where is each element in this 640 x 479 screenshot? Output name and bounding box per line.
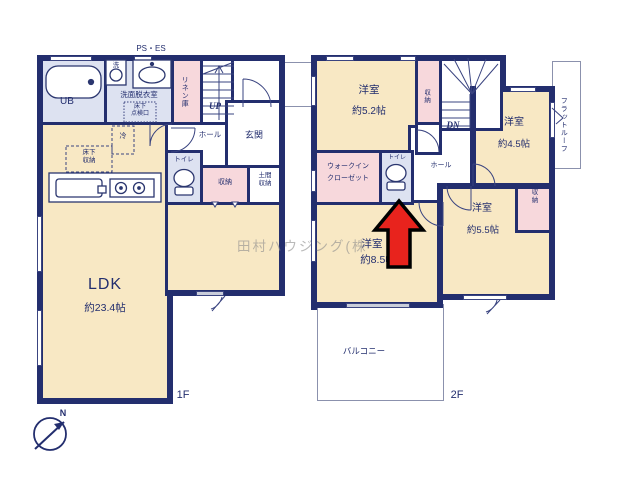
- ps-es-label: PS・ES: [131, 44, 171, 53]
- watermark: 田村ハウジング(株: [237, 235, 368, 255]
- bedroom-8-5-size: 約8.5帖: [348, 254, 408, 266]
- window-marker: [550, 102, 555, 138]
- bedroom-5-2-label: 洋室: [349, 84, 389, 96]
- window-marker: [134, 56, 152, 61]
- bedroom-5-2-size: 約5.2帖: [340, 106, 398, 118]
- wic-label-line2: クローゼット: [320, 175, 376, 183]
- compass-north-label: N: [56, 408, 70, 419]
- window-marker: [326, 56, 354, 61]
- window-marker: [50, 56, 92, 61]
- window-marker: [346, 303, 410, 308]
- floorplan-canvas: N PS・ES UB 洗面脱衣室 床下 点検口 リネン庫 UP ホール 玄関 ト…: [0, 0, 640, 479]
- bedroom-4-5-label: 洋室: [494, 117, 534, 129]
- washer-label: 洗: [106, 62, 126, 70]
- door-area-5-2: [415, 122, 442, 155]
- washroom-label: 洗面脱衣室: [108, 91, 170, 100]
- wic-label-line1: ウォークイン: [320, 163, 376, 171]
- window-marker: [37, 216, 42, 272]
- ub-label: UB: [52, 96, 82, 108]
- doma-storage-label: 土間 収納: [250, 172, 280, 187]
- ldk-size-label: 約23.4帖: [71, 302, 139, 314]
- closet-5-2-label: 収納: [422, 80, 430, 112]
- floor2-label: 2F: [444, 389, 470, 402]
- underfloor-storage-label: 床下 収納: [67, 149, 111, 164]
- fridge-label: 冷: [112, 133, 134, 141]
- closet-5-5-label: 収 納: [522, 189, 548, 204]
- stairs-up-label: UP: [202, 101, 228, 112]
- stairs-down-label: DN: [440, 120, 466, 131]
- bedroom-4-5-size: 約4.5帖: [487, 139, 541, 150]
- room-ub: [37, 55, 107, 125]
- hall-1f-label: ホール: [188, 131, 232, 140]
- wall-segment: [167, 290, 285, 296]
- window-marker: [311, 76, 316, 106]
- storage-1f-label: 収納: [208, 179, 242, 187]
- inspection-hatch-label: 床下 点検口: [124, 104, 156, 118]
- wall-segment: [470, 86, 476, 189]
- floor1-label: 1F: [170, 389, 196, 402]
- entrance-porch: [283, 62, 312, 107]
- window-marker: [400, 56, 416, 61]
- window-marker: [196, 291, 224, 296]
- compass-icon: [26, 406, 78, 462]
- bedroom-5-5-label: 洋室: [462, 203, 502, 215]
- toilet-2f-label: トイレ: [382, 155, 412, 162]
- linen-closet-label: リネン庫: [180, 68, 188, 116]
- balcony-label: バルコニー: [334, 346, 394, 356]
- porch-inner: [240, 61, 280, 105]
- toilet-1f-label: トイレ: [168, 156, 200, 164]
- wall-segment: [167, 293, 173, 404]
- ldk-label: LDK: [75, 276, 135, 295]
- room-bedroom-5-2: [314, 55, 418, 155]
- wall-segment: [437, 183, 443, 308]
- hall-2f-label: ホール: [420, 162, 462, 170]
- window-marker: [311, 170, 316, 192]
- wall-segment: [37, 398, 173, 404]
- window-marker: [510, 87, 536, 92]
- flat-roof-label: フラットルーフ: [559, 82, 567, 168]
- entrance-label: 玄関: [238, 130, 270, 141]
- window-marker: [463, 295, 507, 300]
- window-marker: [37, 310, 42, 366]
- bedroom-5-5-size: 約5.5帖: [456, 225, 510, 236]
